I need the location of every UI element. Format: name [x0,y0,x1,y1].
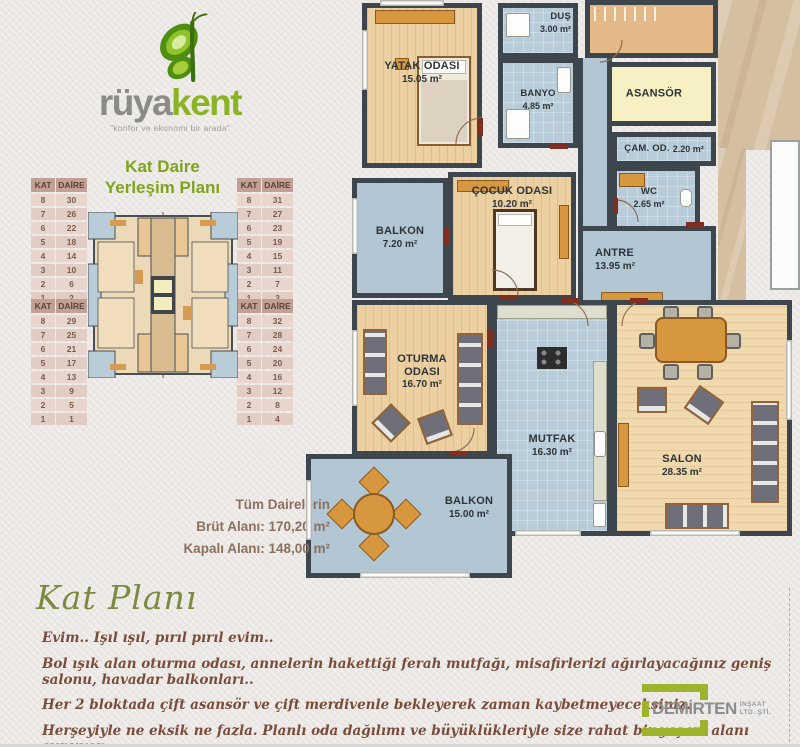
room-name: BANYO [520,89,555,100]
sofa-two-seat [665,503,729,529]
table-row: 726 [31,208,87,220]
door [488,330,493,348]
room-dus: DUŞ 3.00 m² [498,3,578,58]
table-row: 519 [237,236,293,248]
table-row: 27 [237,278,293,290]
floor-plan: YATAK ODASI 15.05 m² DUŞ 3.00 m² BANYO 4… [300,0,800,590]
window [360,572,470,578]
table-row: 832 [237,315,293,327]
adjacent-unit-cutout [770,140,800,290]
door [562,298,580,303]
room-area: 13.95 m² [595,261,635,273]
room-area: 15.00 m² [449,509,489,521]
single-bed [493,209,537,291]
summary-line1: Tüm Dairelerin [55,494,330,516]
table-row: 414 [31,250,87,262]
window [352,198,358,254]
window [650,530,740,536]
table-row: 829 [31,315,87,327]
summary-line2: Brüt Alanı: 170,20 m² [55,516,330,538]
builder-sub2: LTD. ŞTİ. [740,709,771,717]
table-row: 727 [237,208,293,220]
room-area: 7.20 m² [383,239,417,251]
table-row: 624 [237,343,293,355]
room-name: ÇOCUK ODASI [472,185,552,198]
door [450,451,468,456]
corridor-marble-column [718,148,746,302]
balcony-chair [358,530,389,561]
daire-header: DAİRE [262,178,293,192]
stove [537,347,567,369]
kat-header: KAT [237,299,261,313]
table-row: 623 [237,222,293,234]
summary-line3: Kapalı Alanı: 148,00 m² [55,538,330,560]
page-title-line1: Kat Daire [85,156,240,177]
shower-unit [506,109,530,139]
table-row: 520 [237,357,293,369]
table-row: 725 [31,329,87,341]
table-row: 830 [31,194,87,206]
room-oturma-odasi: OTURMA ODASI 16.70 m² [352,300,492,456]
room-area: 4.85 m² [522,101,553,111]
room-name: ÇAM. OD. [624,144,669,155]
room-balkon-large: BALKON 15.00 m² [306,454,512,578]
logo-bracket-top [642,684,708,692]
stairs-steps [594,7,658,21]
kitchen-counter-top [497,305,607,319]
logo-bracket-bottom [642,728,708,736]
armchair [684,385,725,425]
room-stair-hall [585,0,718,58]
hall-connector [578,58,612,226]
room-name: ASANSÖR [626,88,682,101]
room-name: YATAK ODASI [384,60,459,73]
armchair [371,403,411,443]
brand-name-gray: rüya [99,82,171,123]
kat-header: KAT [237,178,261,192]
room-area: 16.30 m² [532,447,572,459]
butterfly-icon [148,12,232,92]
room-camasir-odasi: ÇAM. OD. 2.20 m² [612,132,716,166]
kat-daire-table-1: KAT DAİRE 8307266225184143102612 [30,176,88,306]
room-name: ANTRE [595,247,634,260]
balcony-round-table [353,493,395,535]
dining-chair [697,364,713,380]
floor-layout-thumbnail [88,212,238,378]
door [500,295,518,300]
room-name: OTURMA ODASI [382,353,462,378]
door [444,228,449,246]
table-row: 310 [31,264,87,276]
table-row: 14 [237,413,293,425]
window [786,340,792,420]
room-yatak-odasi: YATAK ODASI 15.05 m² [362,3,482,168]
dining-chair [663,364,679,380]
door [613,198,618,214]
daire-header: DAİRE [262,299,293,313]
room-area: 28.35 m² [662,467,702,479]
fridge [593,503,606,527]
door [550,144,568,149]
window [515,530,581,536]
room-name: DUŞ [550,12,571,23]
room-area: 10.20 m² [492,199,532,211]
paragraph: Bol ışık alan oturma odası, annelerin ha… [42,656,790,688]
table-row: 622 [31,222,87,234]
shower-tray [506,13,530,37]
room-name: SALON [662,453,702,466]
balcony-chair [390,498,421,529]
brand-name-green: kent [171,82,241,123]
dining-table [655,317,727,363]
room-balkon-small: BALKON 7.20 m² [352,178,448,298]
room-area: 2.65 m² [633,199,664,209]
kat-daire-table-4: KAT DAİRE 8327286245204163122814 [236,297,294,427]
brand-wordmark: rüyakent [30,86,310,120]
window [352,330,358,406]
room-banyo: BANYO 4.85 m² [498,58,578,148]
page-title: Kat Daire Yerleşim Planı [85,156,240,198]
table-row: 518 [31,236,87,248]
table-row: 831 [237,194,293,206]
toilet [680,189,692,207]
builder-logo: DEMİRTEN İNŞAAT LTD. ŞTİ. [636,684,796,738]
wardrobe [375,10,455,24]
table-row: 39 [31,385,87,397]
door [630,298,648,303]
table-row: 25 [31,399,87,411]
room-cocuk-odasi: ÇOCUK ODASI 10.20 m² [448,172,576,300]
table-row: 517 [31,357,87,369]
room-name: BALKON [445,495,493,508]
area-summary: Tüm Dairelerin Brüt Alanı: 170,20 m² Kap… [55,494,330,560]
daire-header: DAİRE [56,299,87,313]
table-row: 416 [237,371,293,383]
brand-logo: rüyakent "konfor ve ekonomi bir arada" [30,12,310,133]
builder-name: DEMİRTEN [652,699,737,719]
table-row: 621 [31,343,87,355]
daire-header: DAİRE [56,178,87,192]
dining-chair [725,333,741,349]
room-salon: SALON 28.35 m² [612,300,792,536]
cut-line [789,588,790,747]
table-row: 312 [237,385,293,397]
page-title-line2: Yerleşim Planı [85,177,240,198]
table-row: 413 [31,371,87,383]
room-area: 2.20 m² [673,144,704,154]
table-row: 11 [31,413,87,425]
table-row: 728 [237,329,293,341]
room-area: 16.70 m² [402,379,442,391]
room-name: MUTFAK [528,433,575,446]
kat-daire-table-3: KAT DAİRE 829725621517413392511 [30,297,88,427]
logo-tick [642,701,649,717]
kat-daire-table-2: KAT DAİRE 8317276235194153112713 [236,176,294,306]
dining-chair [639,333,655,349]
table-row: 26 [31,278,87,290]
corridor-marble-area [718,0,800,150]
kat-header: KAT [31,178,55,192]
door [686,222,704,227]
window [362,30,368,90]
table-row: 415 [237,250,293,262]
door [478,118,483,136]
brand-tagline: "konfor ve ekonomi bir arada" [30,123,310,133]
sofa-three-seat [751,401,779,503]
table-row: 311 [237,264,293,276]
room-name: BALKON [376,225,424,238]
kat-header: KAT [31,299,55,313]
paragraph: Evim.. Işıl ışıl, pırıl pırıl evim.. [42,630,790,646]
armchair [417,409,453,445]
kids-wardrobe [559,205,569,259]
armchair [637,387,667,413]
builder-sub1: İNŞAAT [740,701,771,709]
flyer-page: rüyakent "konfor ve ekonomi bir arada" K… [0,0,800,747]
section-heading: Kat Planı [36,578,197,617]
room-name: WC [641,187,657,198]
wc-cabinet [619,173,645,187]
window [380,0,444,6]
table-row: 28 [237,399,293,411]
room-area: 3.00 m² [540,24,571,34]
window [306,480,312,540]
room-area: 15.05 m² [402,74,442,86]
